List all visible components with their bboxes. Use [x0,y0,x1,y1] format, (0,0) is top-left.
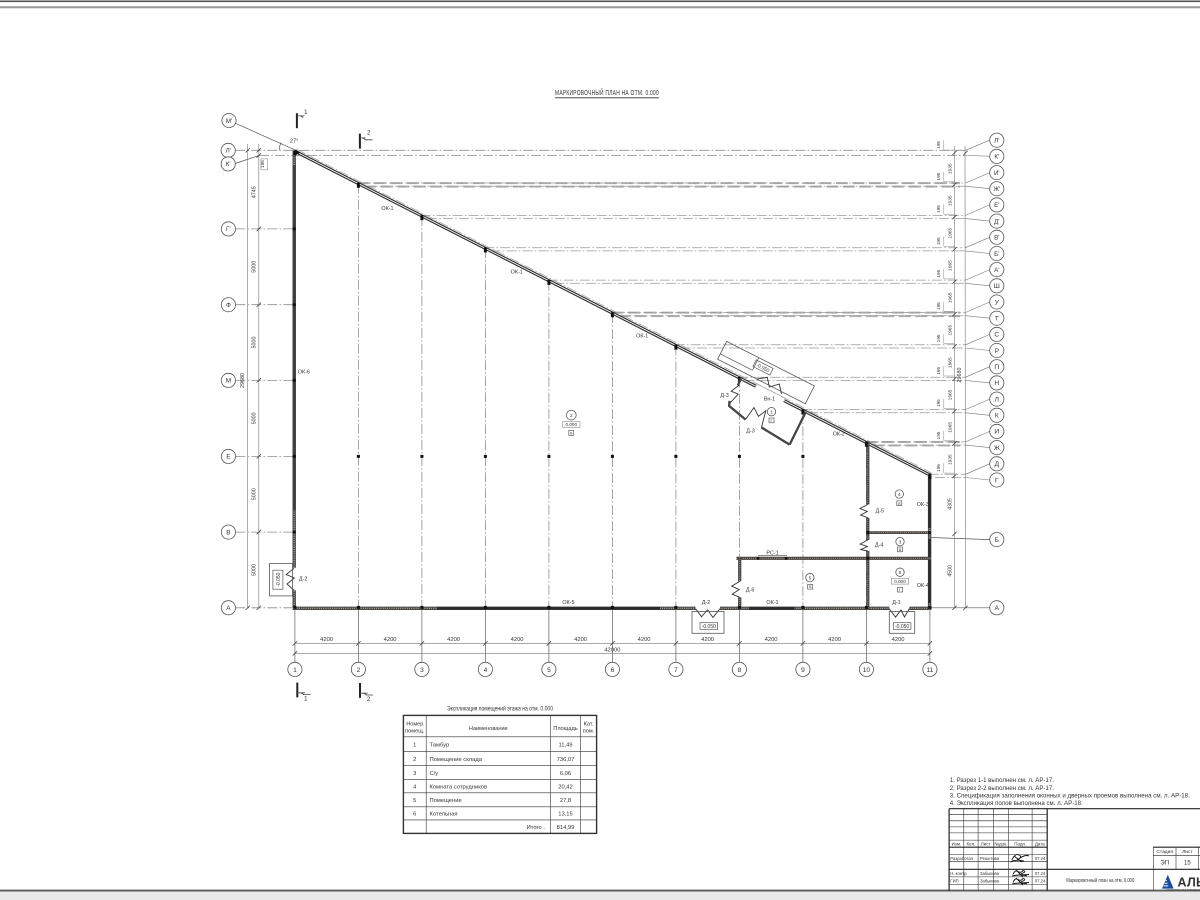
svg-text:5: 5 [809,576,812,582]
svg-text:Д-6: Д-6 [746,588,754,594]
svg-text:Г': Г' [226,226,231,233]
svg-text:2: 2 [570,413,573,419]
svg-text:07.24: 07.24 [1035,879,1046,884]
svg-text:195: 195 [936,205,941,213]
svg-text:К': К' [226,161,231,168]
svg-text:4200: 4200 [765,637,778,643]
svg-text:С/у: С/у [430,771,439,777]
svg-text:195: 195 [936,172,941,180]
svg-text:Подп.: Подп. [1014,841,1026,846]
svg-text:Д-3: Д-3 [746,429,754,435]
svg-text:Кат.: Кат. [584,722,594,728]
svg-text:Д': Д' [994,218,999,225]
svg-text:4: 4 [898,492,901,498]
svg-text:ОК-1: ОК-1 [511,270,523,276]
svg-text:№док.: №док. [994,841,1007,846]
svg-text:1965: 1965 [947,422,953,433]
svg-text:-0.050: -0.050 [702,624,716,630]
svg-text:1935: 1935 [947,454,953,465]
svg-text:736,07: 736,07 [557,757,575,763]
svg-text:Б': Б' [994,251,999,258]
svg-text:4: 4 [484,667,488,674]
svg-text:пом.: пом. [583,729,595,735]
svg-text:6: 6 [413,812,416,818]
svg-text:195: 195 [936,269,941,277]
svg-text:1: 1 [293,667,297,674]
svg-text:А': А' [994,267,999,274]
svg-text:29680: 29680 [240,373,246,388]
svg-text:195: 195 [936,141,941,149]
svg-text:Л': Л' [226,148,231,155]
svg-text:К: К [995,413,999,420]
svg-text:Д-2: Д-2 [299,576,307,582]
svg-text:Наименование: Наименование [469,726,508,732]
svg-text:9: 9 [801,667,805,674]
svg-text:М: М [226,378,231,385]
svg-text:1: 1 [304,696,308,703]
svg-text:Комната сотрудников: Комната сотрудников [430,784,488,790]
svg-text:5000: 5000 [251,412,257,424]
svg-text:Вн-1: Вн-1 [764,397,775,403]
svg-text:15: 15 [1184,861,1191,867]
svg-text:1. Разрез 1-1 выполнен см. л.: 1. Разрез 1-1 выполнен см. л. АР-17. [950,777,1054,784]
svg-text:МАРКИРОВОЧНЫЙ ПЛАН НА ОТМ. 0.0: МАРКИРОВОЧНЫЙ ПЛАН НА ОТМ. 0.000 [555,88,659,97]
svg-text:С: С [994,332,999,339]
svg-text:4200: 4200 [511,637,524,643]
svg-text:4200: 4200 [892,637,905,643]
svg-text:1: 1 [770,410,773,416]
svg-text:1: 1 [413,742,416,748]
svg-text:Д-1: Д-1 [892,600,900,606]
svg-text:8: 8 [738,667,742,674]
svg-text:Л': Л' [994,138,999,145]
svg-text:2. Разрез 2-2 выполнен см. л.: 2. Разрез 2-2 выполнен см. л. АР-17. [950,785,1054,792]
svg-text:Е: Е [226,454,230,461]
svg-text:27,8: 27,8 [560,798,571,804]
svg-text:0.000: 0.000 [566,422,578,427]
svg-text:195: 195 [936,399,941,407]
svg-text:ОК-2: ОК-2 [833,431,845,437]
svg-text:195: 195 [936,367,941,375]
svg-text:Г: Г [771,419,773,423]
svg-text:Изм.: Изм. [952,841,962,846]
svg-text:1935: 1935 [947,195,953,206]
svg-text:07.24: 07.24 [1035,871,1046,876]
svg-text:07.24: 07.24 [1035,856,1046,861]
svg-text:Г: Г [899,588,901,592]
svg-text:АЛЬЯ: АЛЬЯ [1178,875,1200,889]
svg-text:4200: 4200 [574,637,587,643]
svg-text:А: А [995,605,1000,612]
svg-text:строительная компания: строительная компания [1167,888,1200,891]
svg-text:Д-5: Д-5 [876,509,884,515]
svg-text:4. Экспликация полов выполнена: 4. Экспликация полов выполнена см. л. АР… [950,800,1083,807]
svg-text:Д-2: Д-2 [702,600,710,606]
svg-text:1935: 1935 [947,163,953,174]
svg-text:13,15: 13,15 [558,812,573,818]
svg-text:Д-4: Д-4 [875,543,883,549]
svg-text:4500: 4500 [947,565,953,577]
svg-text:Решетова: Решетова [980,856,1000,861]
svg-text:Н: Н [994,380,999,387]
svg-text:-0.050: -0.050 [276,572,282,586]
svg-text:11,49: 11,49 [558,742,572,748]
svg-text:Забыкова: Забыкова [980,871,1000,876]
svg-text:Лист: Лист [981,841,991,846]
svg-text:Дата: Дата [1035,841,1045,846]
svg-text:Лист: Лист [1182,849,1193,855]
svg-text:5000: 5000 [251,337,257,349]
svg-text:ОК-5: ОК-5 [562,600,574,606]
svg-text:Ж': Ж' [993,186,1000,193]
svg-text:2: 2 [413,757,416,763]
svg-text:ГИП: ГИП [950,879,958,884]
svg-text:6: 6 [899,570,902,576]
svg-text:Разработал: Разработал [950,856,973,861]
svg-text:Д: Д [995,461,1000,468]
svg-text:Стадия: Стадия [1156,849,1173,855]
svg-text:4200: 4200 [828,637,841,643]
svg-text:Помещение склада: Помещение склада [430,757,483,763]
svg-text:К': К' [994,154,999,161]
svg-text:Б: Б [995,537,999,544]
svg-text:1965: 1965 [947,357,953,368]
svg-text:ОК-1: ОК-1 [381,206,393,212]
svg-text:7: 7 [674,667,678,674]
svg-text:5000: 5000 [251,488,257,500]
svg-text:4200: 4200 [638,637,651,643]
svg-text:Р: Р [995,348,1000,355]
svg-text:ОК-1: ОК-1 [636,334,648,340]
svg-text:В: В [226,529,230,536]
svg-text:ОК-4: ОК-4 [917,583,929,589]
svg-text:-0.050: -0.050 [895,624,909,630]
svg-text:В': В' [994,235,999,242]
svg-text:3. Спецификация заполнения око: 3. Спецификация заполнения оконных и две… [950,792,1190,799]
svg-text:4200: 4200 [384,637,397,643]
svg-text:Тамбур: Тамбур [430,742,450,748]
svg-text:Н. контр.: Н. контр. [950,871,967,876]
svg-text:1: 1 [304,109,308,116]
svg-text:Номер: Номер [406,722,423,728]
svg-text:1965: 1965 [947,325,953,336]
svg-text:195: 195 [936,431,941,439]
svg-text:Ф: Ф [226,302,231,309]
svg-text:5000: 5000 [251,261,257,273]
svg-text:11: 11 [926,667,933,674]
svg-text:Забыкова: Забыкова [980,879,1000,884]
svg-text:195: 195 [936,464,941,472]
svg-text:ОК-1: ОК-1 [766,600,778,606]
svg-text:5: 5 [547,667,551,674]
svg-text:Л: Л [995,396,999,403]
svg-text:П: П [994,364,999,371]
svg-text:Маркировочный план на отм. 0.0: Маркировочный план на отм. 0.000 [1066,877,1134,884]
svg-text:20,42: 20,42 [558,784,573,790]
svg-text:3: 3 [413,771,416,777]
svg-text:М': М' [226,118,232,125]
svg-text:1965: 1965 [947,260,953,271]
svg-text:3: 3 [420,667,424,674]
svg-text:ОК-3: ОК-3 [917,502,929,508]
svg-text:2: 2 [367,696,371,703]
svg-text:10: 10 [863,667,871,674]
svg-text:5000: 5000 [251,564,257,576]
svg-text:2: 2 [357,667,361,674]
svg-text:195: 195 [936,302,941,310]
svg-text:А: А [226,605,231,612]
svg-text:42000: 42000 [604,647,620,653]
svg-text:1965: 1965 [947,389,953,400]
svg-text:Площадь: Площадь [553,726,577,732]
svg-text:Ж: Ж [994,445,1000,452]
svg-text:ЭП: ЭП [1160,861,1169,867]
svg-text:4200: 4200 [701,637,714,643]
svg-text:Д-3: Д-3 [720,393,728,399]
svg-text:Итого .: Итого . [527,825,546,831]
svg-text:6,06: 6,06 [560,771,571,777]
svg-text:195: 195 [936,237,941,245]
svg-text:И: И [994,429,999,436]
svg-text:29680: 29680 [957,368,963,383]
svg-text:Помещение: Помещение [430,798,462,804]
svg-text:Ш: Ш [994,283,1000,290]
svg-text:0.000: 0.000 [894,579,906,584]
svg-text:Котельная: Котельная [430,812,458,818]
svg-text:Кол.: Кол. [966,841,975,846]
svg-text:ОК-6: ОК-6 [298,370,310,376]
svg-text:2: 2 [367,130,371,137]
svg-text:4200: 4200 [447,637,460,643]
svg-text:4745: 4745 [251,186,257,198]
svg-text:Экспликация помещений этажа на: Экспликация помещений этажа на отм. 0.00… [447,706,553,713]
svg-text:195: 195 [260,160,265,168]
svg-text:3: 3 [899,540,902,546]
svg-text:4200: 4200 [320,637,333,643]
svg-text:195: 195 [936,334,941,342]
svg-text:4305: 4305 [947,498,953,510]
svg-text:6: 6 [611,667,615,674]
svg-text:1965: 1965 [947,292,953,303]
svg-text:27°: 27° [290,139,298,145]
svg-text:Г: Г [995,477,999,484]
svg-text:1965: 1965 [947,227,953,238]
svg-text:помещ.: помещ. [405,729,425,735]
svg-text:814,99: 814,99 [557,825,575,831]
svg-text:И': И' [994,170,1000,177]
svg-text:Т: Т [995,316,999,323]
svg-text:5: 5 [413,798,416,804]
svg-text:Е': Е' [994,202,999,209]
